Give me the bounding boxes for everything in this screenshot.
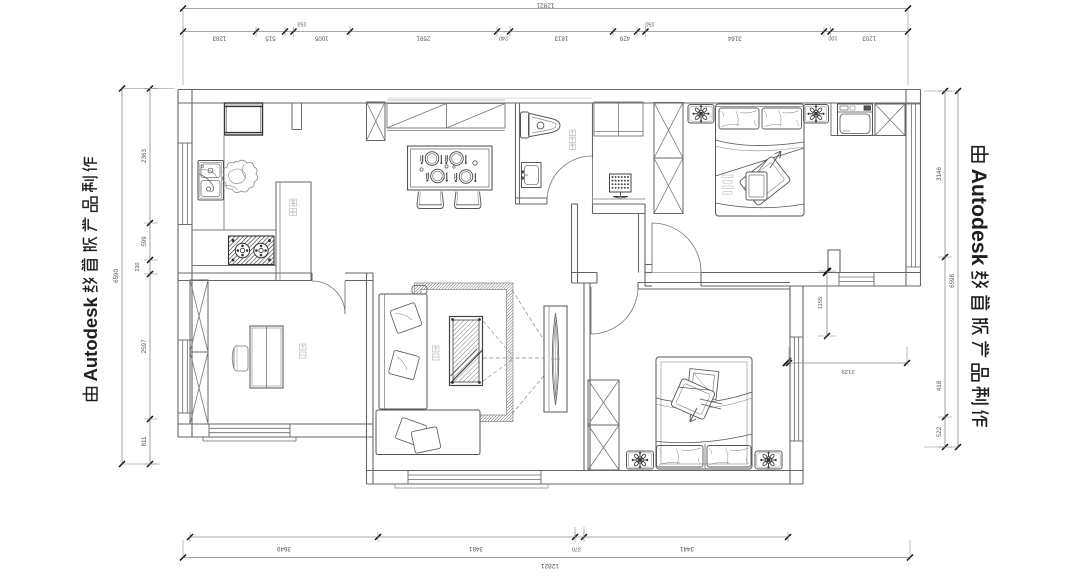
svg-text:599: 599 xyxy=(141,236,148,247)
svg-text:6598: 6598 xyxy=(949,274,956,288)
svg-text:2597: 2597 xyxy=(141,339,148,353)
svg-text:1155: 1155 xyxy=(818,297,824,309)
svg-text:100: 100 xyxy=(828,35,837,41)
svg-text:150: 150 xyxy=(645,21,654,27)
svg-text:2129: 2129 xyxy=(842,368,855,374)
svg-text:153: 153 xyxy=(297,21,306,27)
svg-text:3441: 3441 xyxy=(680,545,694,552)
svg-text:3146: 3146 xyxy=(936,167,943,181)
svg-text:12821: 12821 xyxy=(536,2,554,9)
svg-text:429: 429 xyxy=(619,35,630,42)
svg-text:240: 240 xyxy=(499,35,508,41)
svg-text:3481: 3481 xyxy=(469,545,483,552)
svg-text:515: 515 xyxy=(265,35,276,42)
svg-text:3164: 3164 xyxy=(727,35,741,42)
svg-text:2363: 2363 xyxy=(141,149,148,163)
svg-text:Autodesk: Autodesk xyxy=(967,169,991,266)
svg-text:6590: 6590 xyxy=(113,269,120,283)
svg-text:370: 370 xyxy=(572,546,581,552)
svg-text:1813: 1813 xyxy=(554,35,568,42)
svg-text:3649: 3649 xyxy=(277,545,291,552)
svg-text:2591: 2591 xyxy=(416,35,430,42)
svg-text:1283: 1283 xyxy=(212,35,226,42)
svg-text:418: 418 xyxy=(936,380,943,391)
svg-text:230: 230 xyxy=(135,263,141,272)
svg-text:12821: 12821 xyxy=(541,562,559,569)
svg-text:1203: 1203 xyxy=(862,35,876,42)
svg-text:Autodesk: Autodesk xyxy=(80,297,101,382)
svg-text:811: 811 xyxy=(141,436,148,446)
svg-text:522: 522 xyxy=(936,426,943,437)
svg-text:1005: 1005 xyxy=(314,35,328,42)
